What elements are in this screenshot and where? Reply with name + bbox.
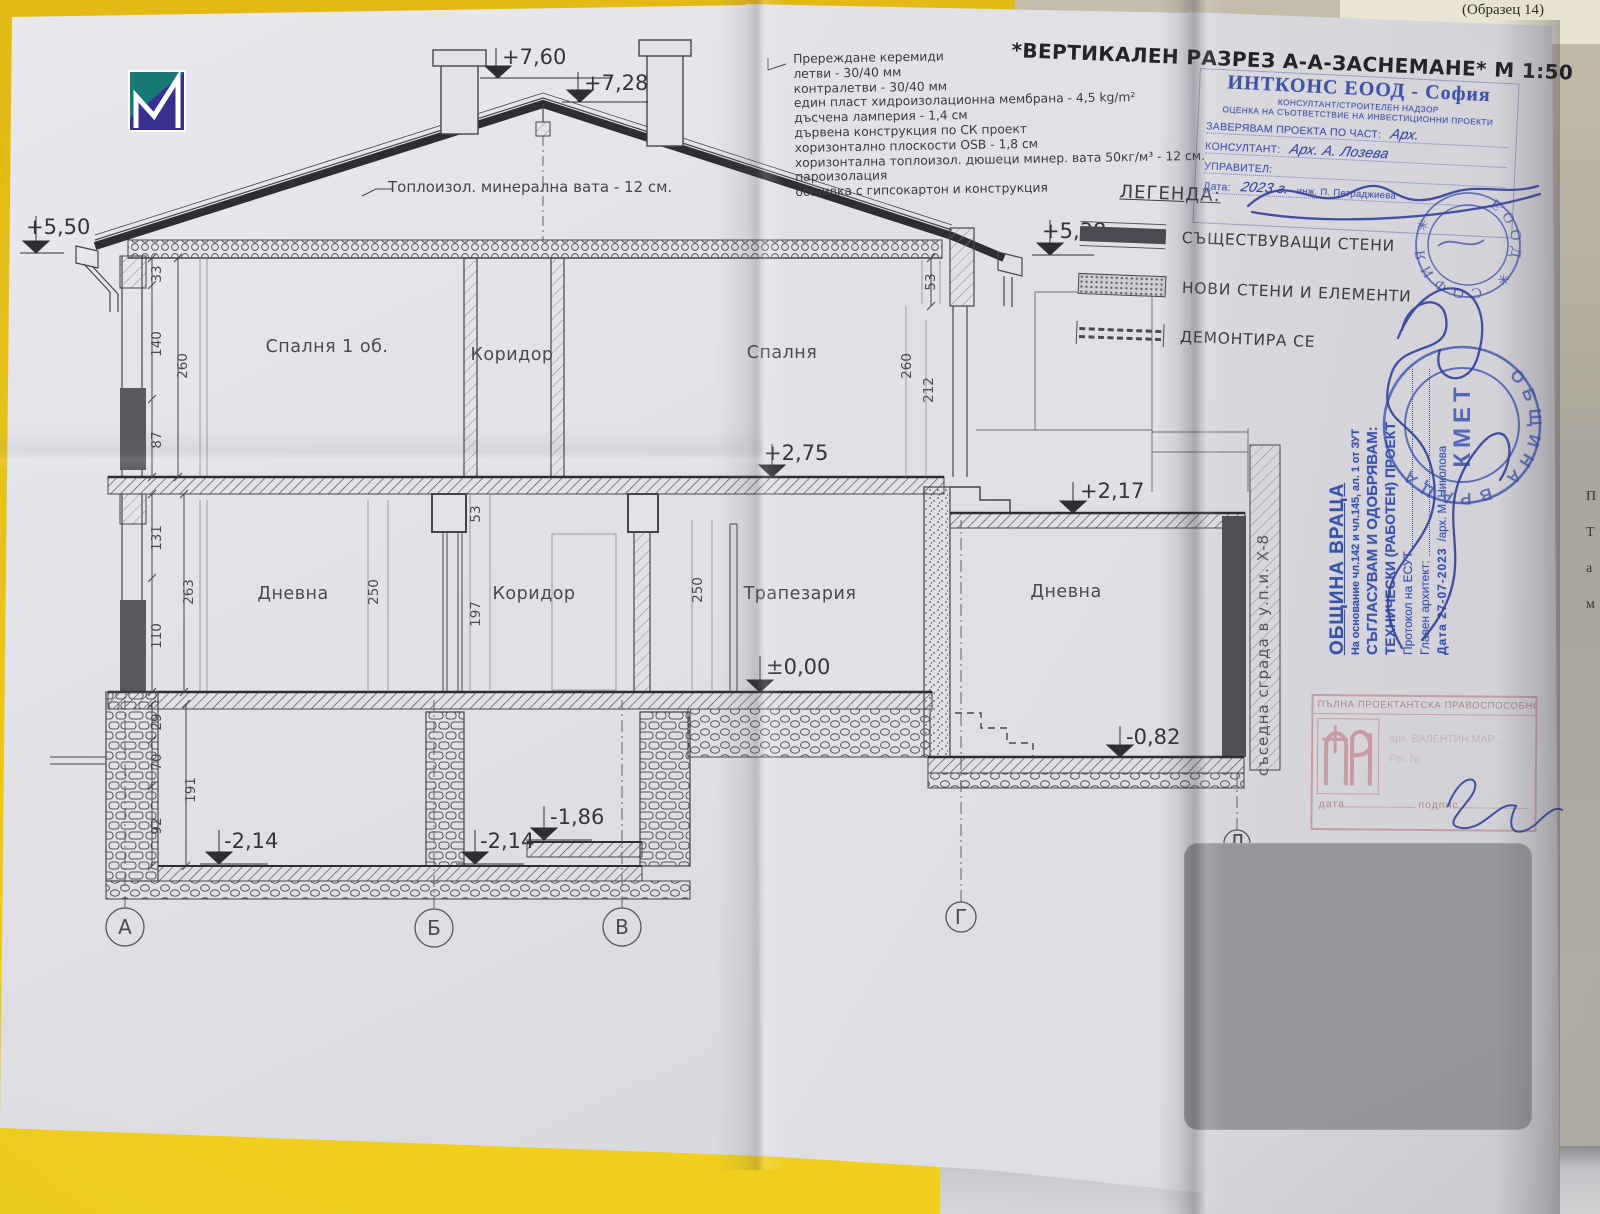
paper-edge-shadow [1496,20,1560,1214]
redacted-title-block [1184,843,1532,1130]
edge-cut-text: П Т а м [1586,490,1600,634]
edge-letter: Т [1586,526,1600,540]
edge-letter: П [1586,490,1600,504]
scanned-section-drawing: (Образец 14) [0,0,1600,1214]
horizontal-crease [0,428,762,474]
edge-letter: м [1586,598,1600,612]
paper-fold [1158,0,1224,1214]
edge-letter: а [1586,562,1600,576]
paper-fold [716,0,794,1170]
